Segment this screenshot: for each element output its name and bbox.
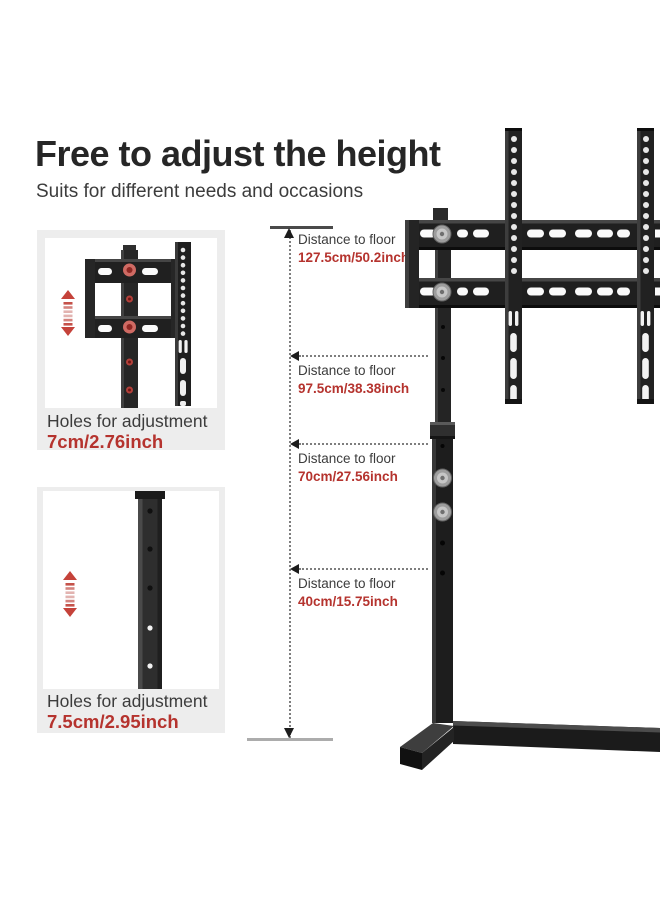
dimension-top-bar (270, 226, 333, 229)
stand-base (400, 721, 660, 770)
page: Free to adjust the height Suits for diff… (0, 0, 660, 900)
arrow-left-icon (290, 564, 299, 574)
pole-closeup-illustration (43, 491, 219, 689)
panel-value: 7cm/2.76inch (47, 431, 163, 452)
inset-panel-bracket-holes: Holes for adjustment 7cm/2.76inch (37, 230, 225, 450)
bracket-closeup-image (45, 238, 217, 408)
bracket-knob (433, 225, 451, 243)
pole-closeup-drawing (135, 491, 165, 689)
dimension-vertical-line (289, 230, 291, 738)
telescopic-lower-pole (430, 422, 455, 723)
page-subtitle: Suits for different needs and occasions (36, 181, 363, 204)
pole-lock-knob (434, 503, 452, 521)
floor-line (247, 738, 333, 741)
vesa-strip-right (637, 128, 654, 404)
pole-lock-knob (434, 469, 452, 487)
adjust-updown-icon (61, 290, 75, 336)
inset-panel-pole-holes: Holes for adjustment 7.5cm/2.95inch (37, 487, 225, 733)
panel-value: 7.5cm/2.95inch (47, 711, 179, 732)
adjust-updown-icon (63, 571, 77, 617)
panel-caption: Holes for adjustment (47, 411, 208, 431)
bracket-knob (433, 283, 451, 301)
bracket-closeup-illustration (45, 238, 217, 408)
tv-stand-illustration (380, 100, 660, 780)
pole-closeup-image (43, 491, 219, 689)
panel-caption: Holes for adjustment (47, 691, 208, 711)
arrow-left-icon (290, 351, 299, 361)
arrow-up-icon (284, 228, 294, 238)
vesa-strip-left (505, 128, 522, 404)
arrow-left-icon (290, 439, 299, 449)
arrow-down-icon (284, 728, 294, 738)
bracket-closeup-drawing (85, 242, 191, 408)
